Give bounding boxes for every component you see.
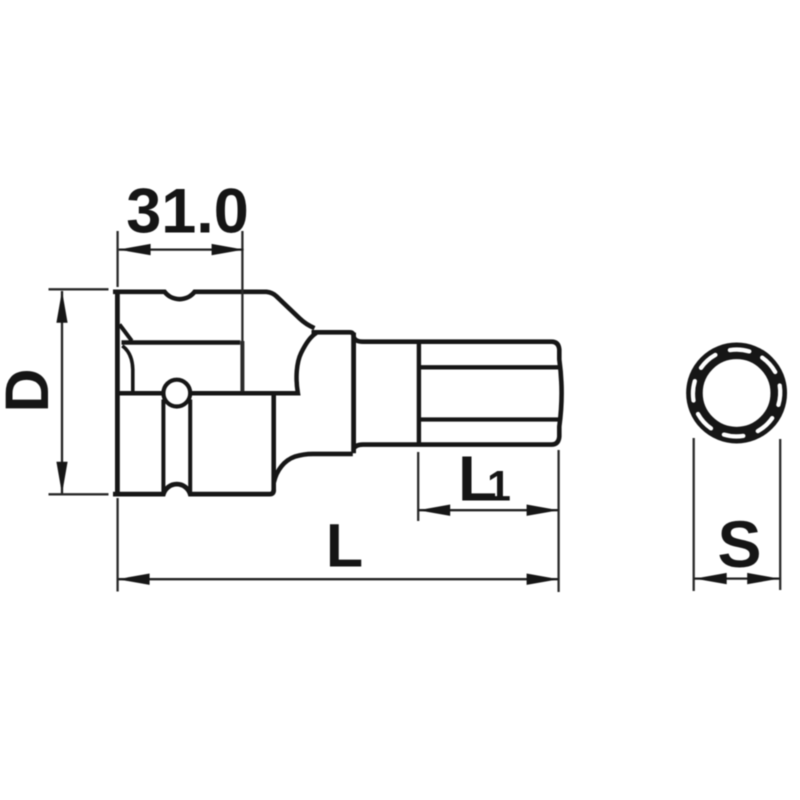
svg-text:S: S xyxy=(717,507,761,581)
svg-text:1: 1 xyxy=(487,463,511,511)
svg-text:31.0: 31.0 xyxy=(126,177,249,247)
svg-text:D: D xyxy=(0,368,61,412)
svg-text:L: L xyxy=(326,512,363,580)
